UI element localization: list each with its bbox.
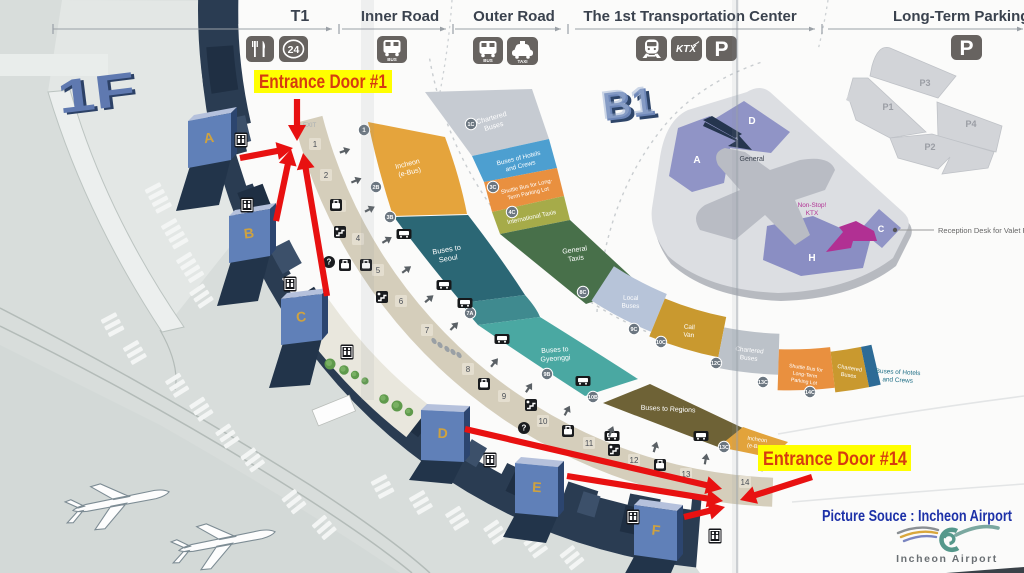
svg-text:Call: Call <box>684 324 695 332</box>
svg-text:TAXI: TAXI <box>518 59 528 64</box>
svg-text:3B: 3B <box>387 215 394 221</box>
svg-text:10B: 10B <box>588 395 598 401</box>
svg-text:14: 14 <box>741 478 750 487</box>
svg-text:Long-Term Parking Lot: Long-Term Parking Lot <box>893 8 1024 25</box>
svg-text:9C: 9C <box>631 327 638 333</box>
svg-text:P2: P2 <box>924 142 935 152</box>
svg-text:3C: 3C <box>490 185 497 191</box>
svg-text:7: 7 <box>425 326 430 335</box>
svg-text:P1: P1 <box>882 102 893 112</box>
svg-text:BUS: BUS <box>483 58 493 63</box>
svg-text:D: D <box>748 116 755 127</box>
svg-text:A: A <box>693 155 700 166</box>
svg-text:B: B <box>243 224 255 241</box>
svg-text:14C: 14C <box>805 390 815 396</box>
svg-text:11: 11 <box>585 439 594 448</box>
svg-text:P4: P4 <box>965 119 976 129</box>
svg-text:10C: 10C <box>656 340 666 346</box>
svg-text:Van: Van <box>683 332 695 340</box>
svg-text:KTX: KTX <box>806 210 819 217</box>
svg-text:12: 12 <box>630 456 639 465</box>
svg-text:P: P <box>714 38 728 61</box>
svg-text:?: ? <box>327 258 332 267</box>
svg-text:8: 8 <box>466 365 471 374</box>
svg-text:P: P <box>959 37 973 60</box>
svg-text:Local: Local <box>623 294 639 302</box>
svg-text:C: C <box>878 224 885 234</box>
svg-text:8C: 8C <box>580 290 587 296</box>
svg-text:KTX: KTX <box>676 44 697 55</box>
svg-text:5: 5 <box>376 266 381 275</box>
svg-text:Picture Souce : Incheon Airpor: Picture Souce : Incheon Airport <box>822 508 1012 525</box>
svg-text:Reception Desk for Valet P: Reception Desk for Valet P <box>938 226 1024 235</box>
svg-text:24: 24 <box>288 44 300 56</box>
svg-text:General: General <box>740 156 765 163</box>
svg-text:P3: P3 <box>919 78 930 88</box>
svg-text:?: ? <box>522 424 527 433</box>
svg-text:10: 10 <box>539 417 548 426</box>
svg-text:C: C <box>295 308 306 325</box>
svg-text:6: 6 <box>399 297 404 306</box>
svg-text:1F: 1F <box>54 61 138 123</box>
svg-text:Outer Road: Outer Road <box>473 8 555 25</box>
svg-text:Buses: Buses <box>621 302 639 310</box>
svg-text:Entrance Door #1: Entrance Door #1 <box>259 72 387 93</box>
svg-text:BUS: BUS <box>387 57 397 62</box>
svg-text:2: 2 <box>324 171 329 180</box>
svg-text:1C: 1C <box>468 122 475 128</box>
svg-text:9: 9 <box>502 392 507 401</box>
svg-text:B1: B1 <box>598 78 655 128</box>
svg-text:T1: T1 <box>291 8 310 25</box>
svg-text:D: D <box>437 425 448 441</box>
svg-text:4C: 4C <box>509 210 516 216</box>
svg-text:1: 1 <box>313 140 318 149</box>
svg-text:12C: 12C <box>711 361 721 367</box>
svg-text:7A: 7A <box>467 311 474 317</box>
svg-text:9B: 9B <box>544 372 551 378</box>
svg-text:E: E <box>532 479 542 496</box>
svg-text:Non-Stop!: Non-Stop! <box>798 202 827 209</box>
svg-text:13C: 13C <box>758 380 768 386</box>
svg-text:H: H <box>808 253 815 264</box>
svg-text:The 1st Transportation Center: The 1st Transportation Center <box>583 8 797 25</box>
svg-text:13C: 13C <box>719 445 729 451</box>
svg-text:Entrance Door #14: Entrance Door #14 <box>763 448 907 470</box>
svg-text:Incheon Airport: Incheon Airport <box>896 553 998 565</box>
svg-text:4: 4 <box>356 234 361 243</box>
